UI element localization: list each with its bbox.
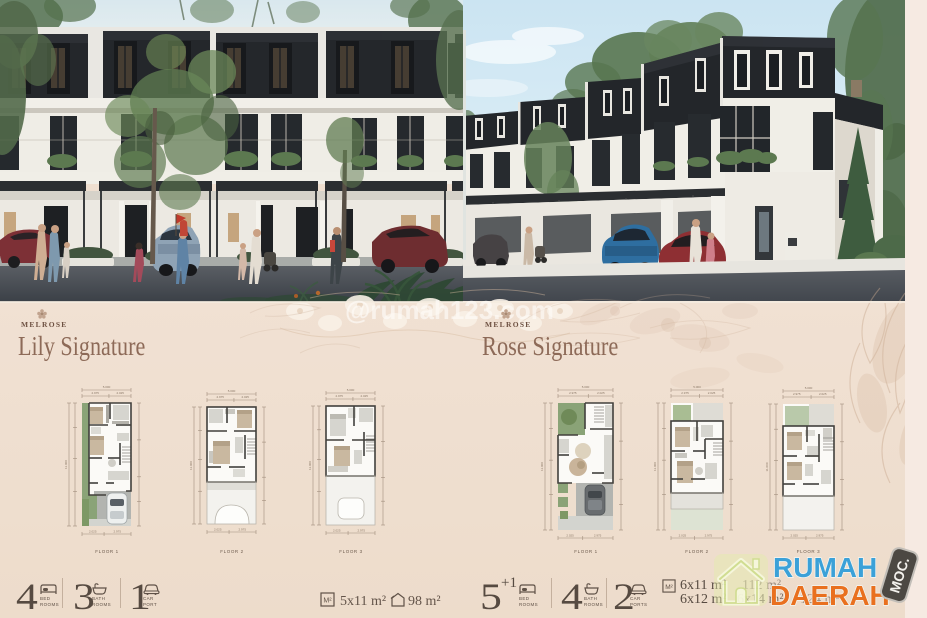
svg-text:2.975: 2.975 (816, 534, 824, 538)
svg-text:5.000: 5.000 (582, 385, 590, 389)
svg-text:2.975: 2.975 (91, 391, 99, 395)
svg-text:2.975: 2.975 (239, 528, 247, 532)
svg-text:M²: M² (323, 598, 332, 605)
svg-text:2.025: 2.025 (214, 528, 222, 532)
svg-text:2.025: 2.025 (597, 391, 605, 395)
svg-text:2.975: 2.975 (358, 529, 366, 533)
svg-text:2.025: 2.025 (333, 529, 341, 533)
svg-text:2.025: 2.025 (241, 395, 249, 399)
svg-text:11.000: 11.000 (189, 461, 193, 470)
svg-text:RUMAH: RUMAH (773, 552, 877, 583)
svg-text:2.975: 2.975 (705, 534, 713, 538)
svg-text:2.975: 2.975 (681, 391, 689, 395)
svg-text:2.975: 2.975 (216, 395, 224, 399)
svg-text:11.000: 11.000 (765, 462, 769, 471)
svg-text:2.025: 2.025 (708, 391, 716, 395)
svg-text:2.975: 2.975 (569, 391, 577, 395)
svg-text:2.025: 2.025 (116, 391, 124, 395)
svg-text:5.000: 5.000 (103, 385, 111, 389)
svg-text:2.025: 2.025 (679, 534, 687, 538)
svg-text:5.000: 5.000 (228, 389, 236, 393)
svg-text:2.975: 2.975 (114, 530, 122, 534)
svg-text:2.975: 2.975 (793, 392, 801, 396)
svg-text:2.025: 2.025 (566, 534, 574, 538)
svg-text:2.025: 2.025 (790, 534, 798, 538)
svg-text:2.025: 2.025 (360, 394, 368, 398)
svg-text:2.025: 2.025 (89, 530, 97, 534)
svg-text:5.000: 5.000 (805, 386, 813, 390)
svg-text:2.025: 2.025 (819, 392, 827, 396)
svg-text:2.975: 2.975 (594, 534, 602, 538)
svg-text:DAERAH: DAERAH (770, 580, 890, 611)
svg-text:11.000: 11.000 (653, 462, 657, 471)
svg-text:11.000: 11.000 (308, 461, 312, 470)
svg-text:11.000: 11.000 (64, 460, 68, 469)
svg-text:5.000: 5.000 (693, 385, 701, 389)
svg-text:M²: M² (665, 584, 673, 591)
svg-text:5.000: 5.000 (347, 388, 355, 392)
svg-text:2.975: 2.975 (335, 394, 343, 398)
svg-text:11.000: 11.000 (540, 462, 544, 471)
